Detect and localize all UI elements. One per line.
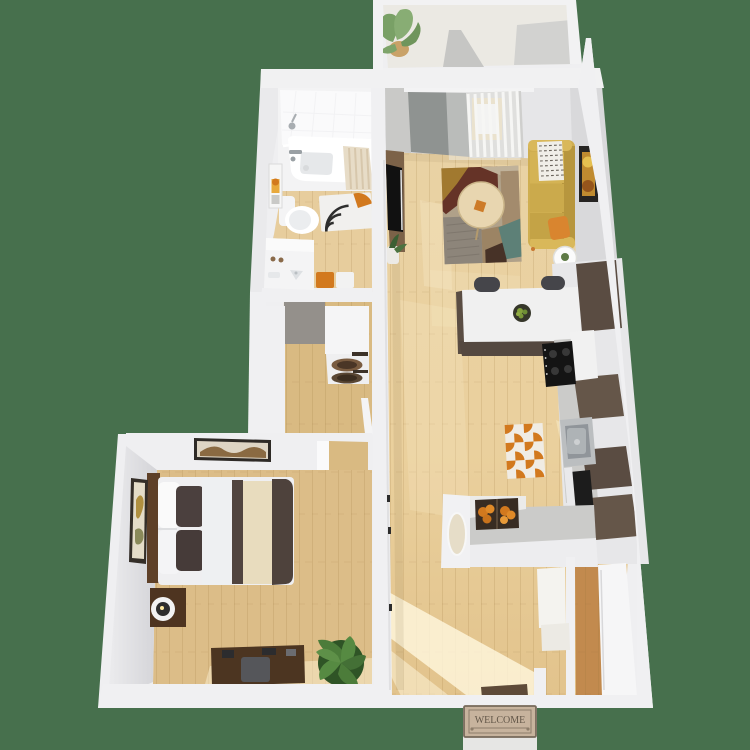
svg-text:WELCOME: WELCOME	[475, 715, 526, 726]
